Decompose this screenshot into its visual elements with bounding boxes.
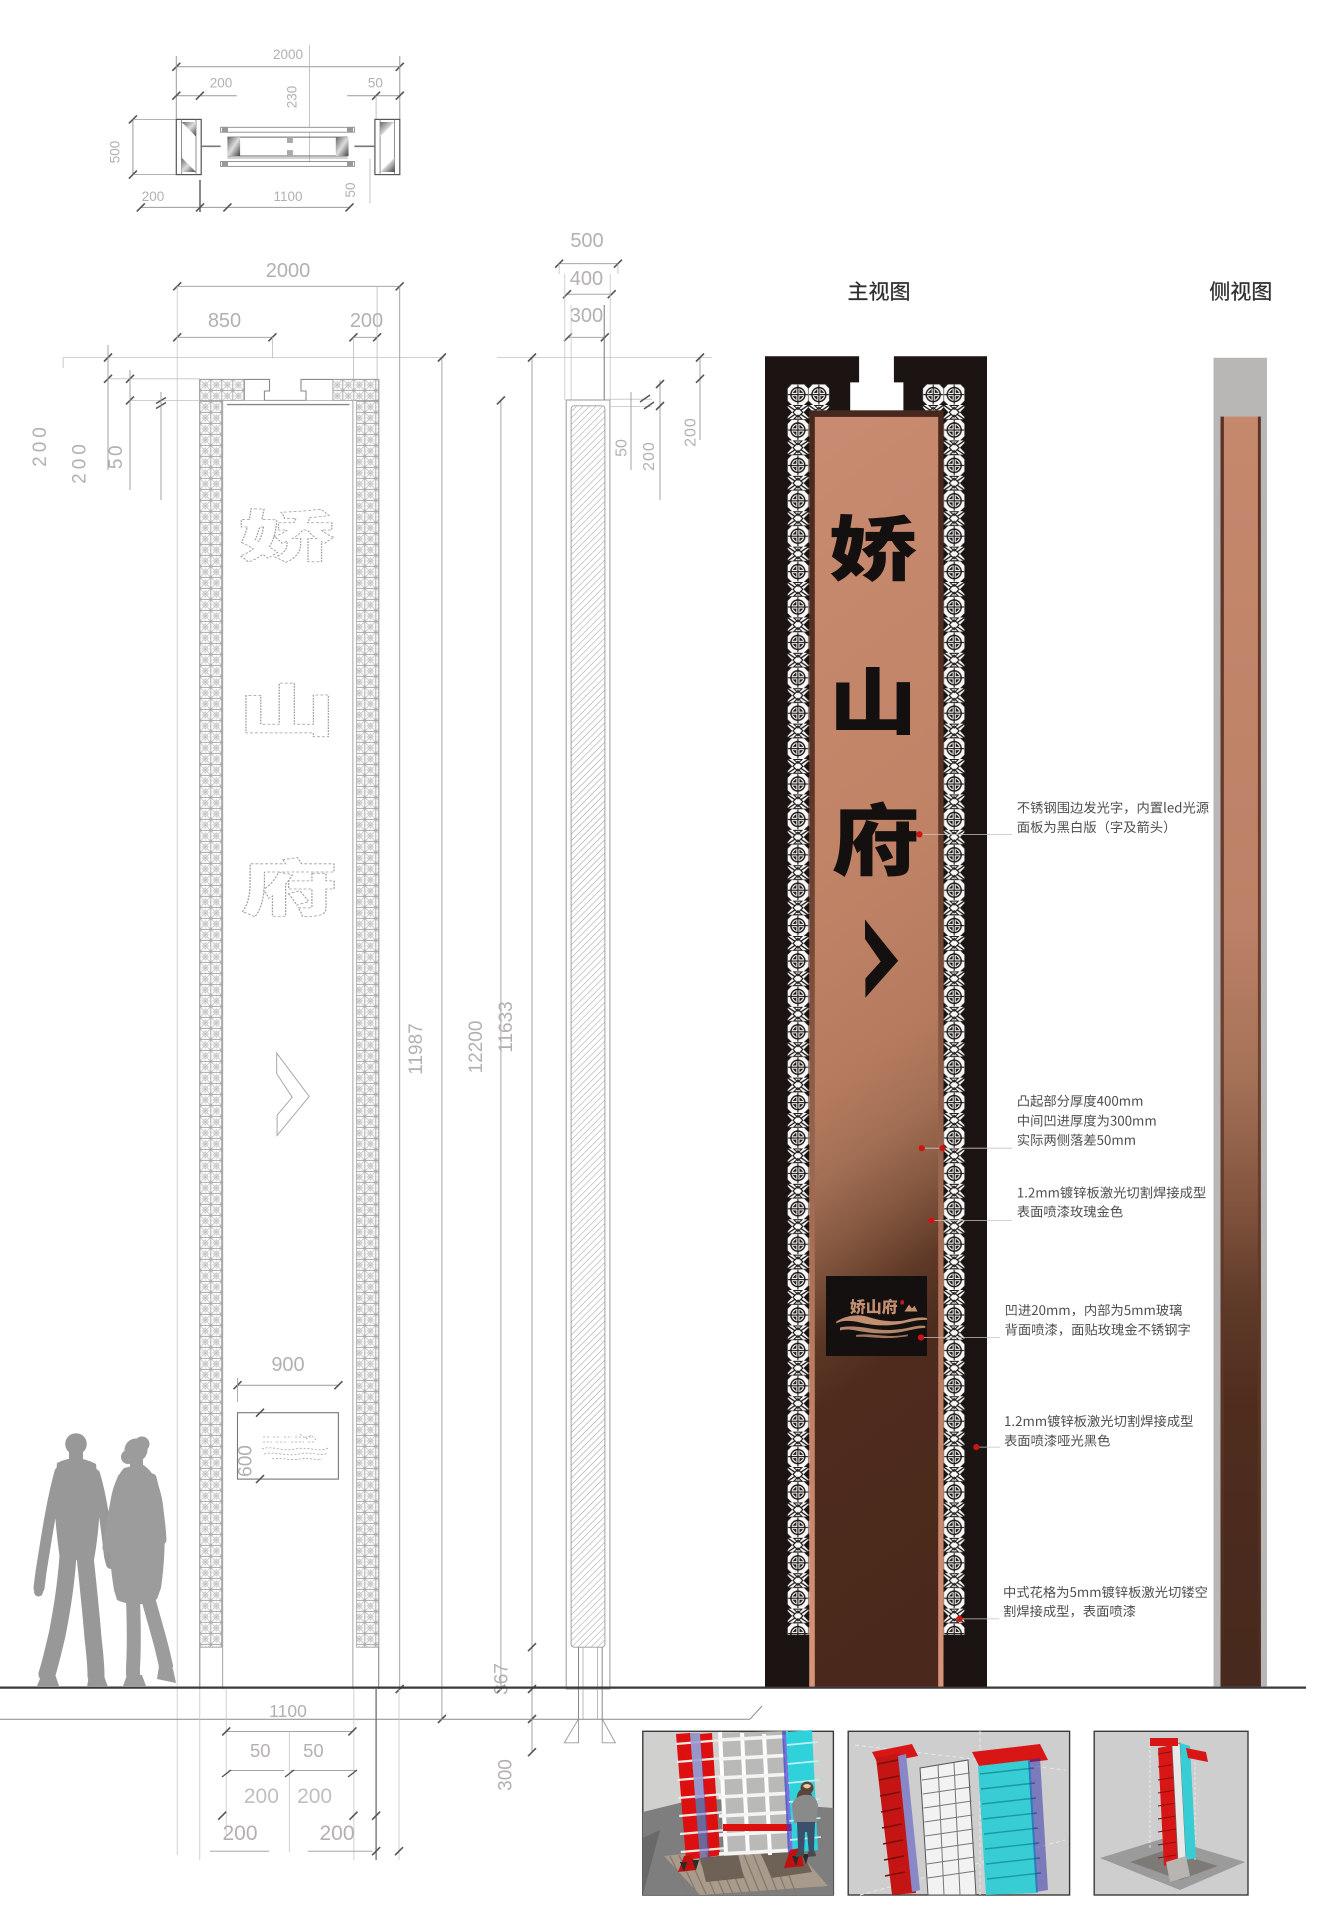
svg-text:850: 850	[208, 310, 241, 332]
svg-text:50: 50	[250, 1740, 271, 1761]
svg-text:11987: 11987	[406, 1023, 427, 1074]
svg-text:2000: 2000	[273, 47, 303, 62]
svg-text:300: 300	[570, 305, 603, 327]
svg-text:1100: 1100	[269, 1701, 307, 1721]
svg-text:2000: 2000	[266, 260, 311, 282]
svg-text:200: 200	[222, 1822, 257, 1845]
svg-text:200: 200	[641, 441, 658, 471]
svg-text:500: 500	[570, 230, 603, 252]
svg-text:50: 50	[106, 443, 127, 469]
svg-text:367: 367	[492, 1663, 513, 1695]
svg-text:200: 200	[210, 76, 233, 91]
svg-text:300: 300	[496, 1759, 517, 1791]
svg-text:200: 200	[319, 1822, 354, 1845]
svg-text:200: 200	[30, 423, 51, 467]
svg-text:200: 200	[350, 310, 383, 332]
svg-text:50: 50	[614, 439, 631, 457]
svg-text:50: 50	[368, 76, 383, 91]
svg-text:200: 200	[683, 417, 700, 447]
svg-text:230: 230	[285, 86, 300, 109]
svg-text:400: 400	[570, 268, 603, 290]
svg-text:200: 200	[70, 440, 91, 484]
svg-text:600: 600	[236, 1445, 257, 1477]
svg-text:1100: 1100	[273, 189, 302, 204]
svg-text:50: 50	[303, 1740, 324, 1761]
svg-text:500: 500	[108, 141, 123, 164]
svg-text:200: 200	[244, 1785, 279, 1808]
svg-text:200: 200	[297, 1785, 332, 1808]
svg-text:12200: 12200	[466, 1021, 487, 1074]
svg-text:900: 900	[271, 1354, 304, 1376]
svg-text:200: 200	[142, 189, 165, 204]
svg-text:50: 50	[343, 182, 358, 197]
svg-text:11633: 11633	[496, 1001, 517, 1052]
